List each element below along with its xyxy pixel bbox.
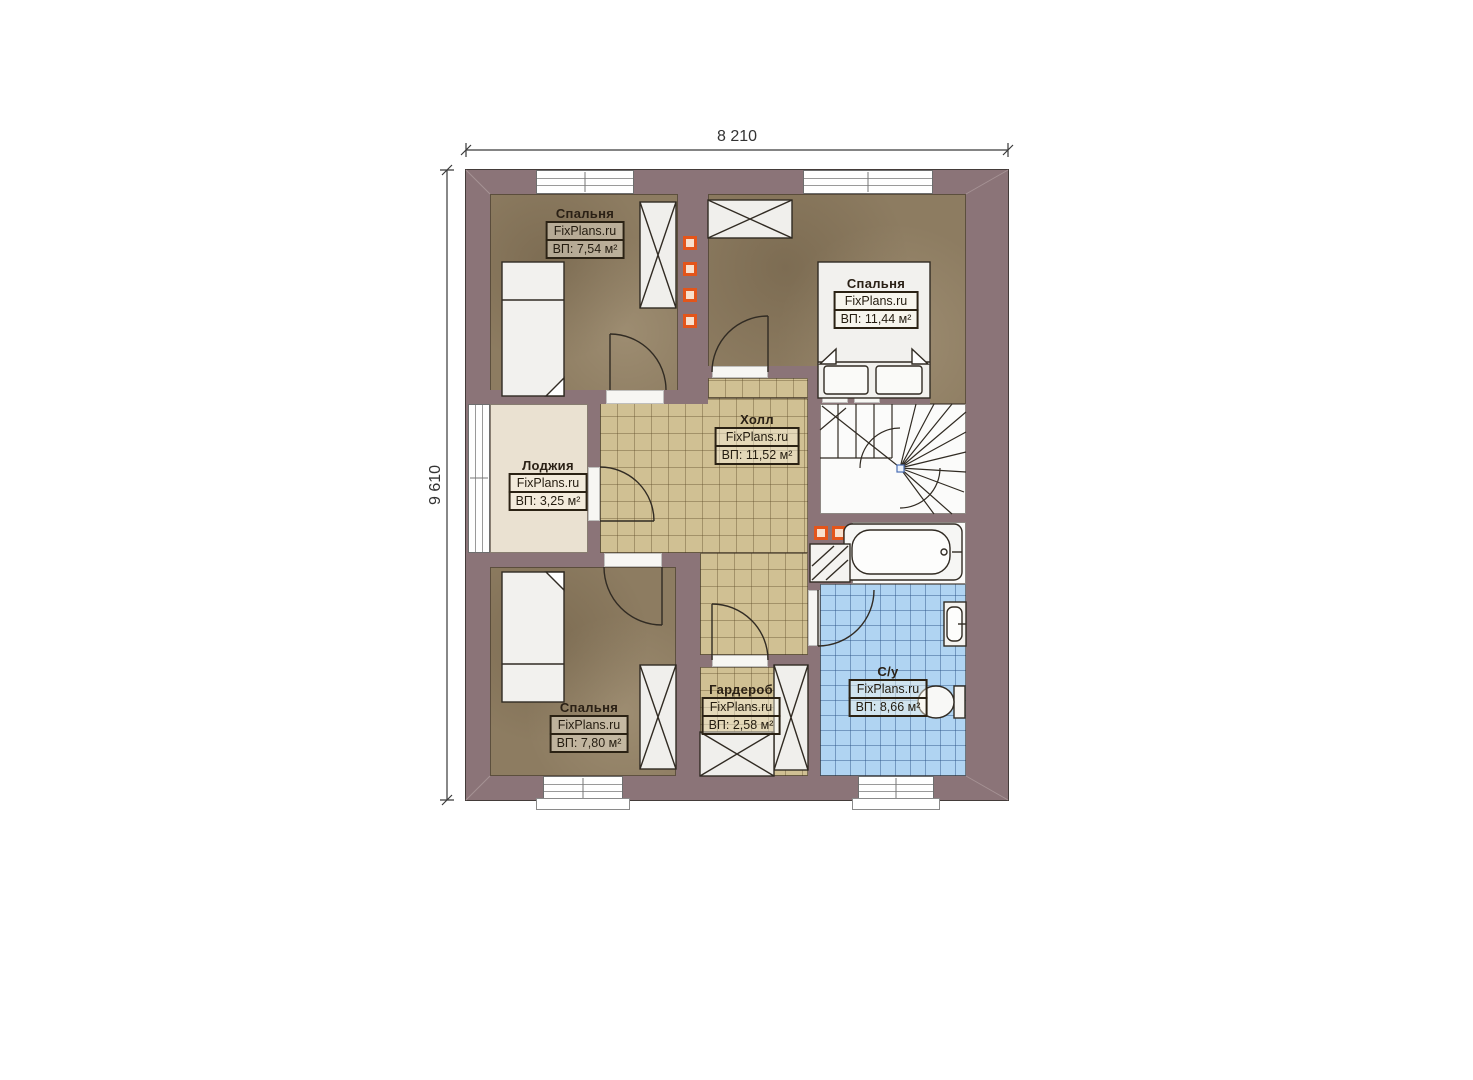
- room-label-bathroom: С/у FixPlans.ru ВП: 8,66 м²: [849, 664, 928, 717]
- area-box: ВП: 7,80 м²: [550, 733, 629, 753]
- brand-box: FixPlans.ru: [702, 697, 781, 717]
- duct-hatch: [810, 544, 850, 582]
- bed-single-top-left: [502, 262, 564, 396]
- wardrobe-top-right: [708, 200, 792, 238]
- room-name: Гардероб: [702, 682, 781, 697]
- bed-single-bottom-left: [502, 572, 564, 702]
- door-loggia: [600, 467, 654, 521]
- area-box: ВП: 8,66 м²: [849, 697, 928, 717]
- brand-box: FixPlans.ru: [550, 715, 629, 735]
- wardrobe-bottom-left: [640, 665, 676, 769]
- door-bedroom-top-left: [610, 334, 666, 390]
- sink: [944, 602, 966, 646]
- room-name: Лоджия: [509, 458, 588, 473]
- room-name: Спальня: [550, 700, 629, 715]
- room-name: С/у: [849, 664, 928, 679]
- brand-box: FixPlans.ru: [715, 427, 800, 447]
- wardrobe-room-bottom-unit: [700, 732, 774, 776]
- room-name: Спальня: [834, 276, 919, 291]
- bathtub: [844, 524, 962, 580]
- door-bedroom-top-right: [712, 316, 768, 372]
- door-wardrobe-room: [712, 604, 768, 660]
- room-name: Холл: [715, 412, 800, 427]
- area-box: ВП: 3,25 м²: [509, 491, 588, 511]
- room-name: Спальня: [546, 206, 625, 221]
- area-box: ВП: 7,54 м²: [546, 239, 625, 259]
- area-box: ВП: 11,44 м²: [834, 309, 919, 329]
- door-bathroom: [818, 590, 874, 646]
- brand-box: FixPlans.ru: [546, 221, 625, 241]
- plan-linework: [0, 0, 1473, 1080]
- door-bedroom-bottom-left: [604, 567, 662, 625]
- wardrobe-top-left: [640, 202, 676, 308]
- brand-box: FixPlans.ru: [849, 679, 928, 699]
- room-label-hall: Холл FixPlans.ru ВП: 11,52 м²: [715, 412, 800, 465]
- room-label-bedroom-top-right: Спальня FixPlans.ru ВП: 11,44 м²: [834, 276, 919, 329]
- brand-box: FixPlans.ru: [509, 473, 588, 493]
- room-label-bedroom-bottom-left: Спальня FixPlans.ru ВП: 7,80 м²: [550, 700, 629, 753]
- dimension-line-left: [440, 165, 454, 805]
- area-box: ВП: 11,52 м²: [715, 445, 800, 465]
- brand-box: FixPlans.ru: [834, 291, 919, 311]
- room-label-bedroom-top-left: Спальня FixPlans.ru ВП: 7,54 м²: [546, 206, 625, 259]
- room-label-loggia: Лоджия FixPlans.ru ВП: 3,25 м²: [509, 458, 588, 511]
- dimension-line-top: [461, 143, 1013, 157]
- area-box: ВП: 2,58 м²: [702, 715, 781, 735]
- room-label-wardrobe-room: Гардероб FixPlans.ru ВП: 2,58 м²: [702, 682, 781, 735]
- staircase: [820, 404, 966, 514]
